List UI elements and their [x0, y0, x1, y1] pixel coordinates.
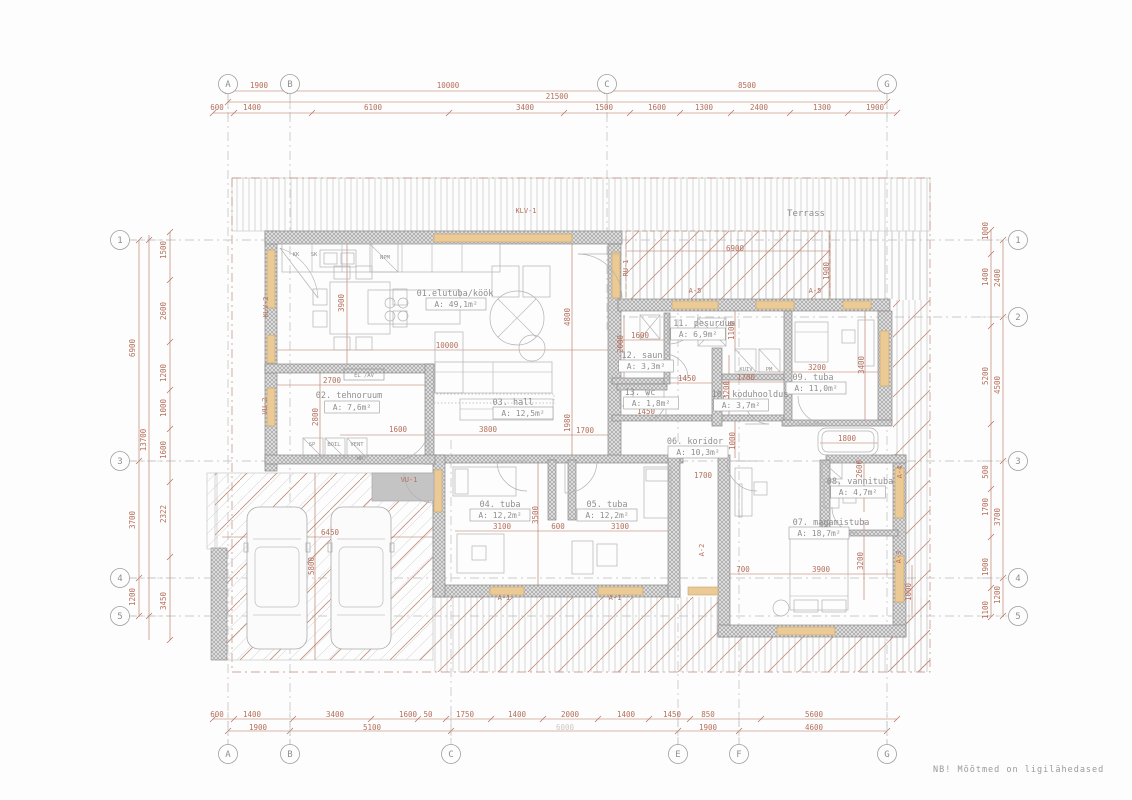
room-area: A: 18,7m²: [797, 529, 840, 538]
plan-rect: [211, 548, 227, 660]
wall: [784, 311, 792, 426]
grid-bubble-label: 3: [117, 457, 122, 467]
plan-rect: [232, 178, 930, 231]
window: [880, 331, 889, 386]
dimension-text: 1200: [159, 363, 168, 382]
dimension-text: 3100: [493, 522, 512, 531]
dimension-text: 10000: [437, 81, 460, 90]
dimension-text: 850: [701, 710, 715, 719]
room-area: A: 10,3m²: [676, 448, 719, 457]
small-label: NPM: [380, 255, 391, 261]
dimension-text: 3700: [128, 510, 137, 529]
window: [434, 234, 572, 242]
grid-bubble-label: 2: [1015, 313, 1020, 323]
room-label: 01.elutuba/köök: [417, 289, 494, 299]
room-area: A: 3,7m²: [722, 401, 761, 410]
car: [331, 507, 391, 649]
tag-label: KLV-2: [262, 296, 270, 317]
wall: [712, 348, 722, 426]
room-label: 12. saun: [622, 351, 663, 361]
dimension-text: 8500: [738, 81, 757, 90]
wall: [433, 455, 683, 463]
tag-label: VU-2: [261, 398, 269, 415]
dimension-text: 2400: [750, 103, 769, 112]
grid-bubble-label: A: [225, 750, 231, 760]
small-label: KK: [293, 252, 300, 258]
small-label: WD: [357, 456, 364, 462]
dimension-text: 1000: [904, 582, 913, 601]
wall: [718, 455, 730, 637]
dimension-text: 3400: [857, 355, 866, 374]
small-label: Terrass: [787, 209, 825, 219]
dimension-text: 4800: [563, 307, 572, 326]
small-label: PM: [766, 367, 773, 373]
tag-label: KLV-1: [515, 207, 536, 215]
dimension-text: 6900: [128, 338, 137, 357]
window: [777, 627, 835, 635]
dimension-text: 3400: [516, 103, 535, 112]
dimension-text: 600: [210, 103, 224, 112]
dimension-text: 1000: [728, 431, 737, 450]
dimension-text: 1700: [694, 471, 713, 480]
grid-bubble-label: 1: [117, 236, 122, 246]
wall: [782, 420, 892, 426]
room-label: 07. magamistuba: [793, 518, 870, 528]
car: [247, 507, 307, 649]
dimension-text: 1600: [648, 103, 667, 112]
dimension-text: 1300: [813, 103, 832, 112]
tag-label: A-4: [896, 466, 904, 479]
room-label: 02. tehnoruum: [316, 391, 383, 401]
dimension-text: 1000: [981, 221, 990, 240]
dimension-text: 1450: [678, 374, 697, 383]
dimension-text: 5600: [805, 710, 824, 719]
small-label: KUIV: [739, 367, 753, 373]
window: [843, 301, 871, 309]
dimension-text: 2000: [561, 710, 580, 719]
dimension-text: 700: [736, 565, 750, 574]
grid-bubble-label: C: [604, 80, 609, 90]
grid-bubble-label: 5: [1015, 612, 1020, 622]
dimension-text: 1400: [243, 103, 262, 112]
tag-label: VU-1: [401, 476, 418, 484]
dimension-text: 1900: [250, 81, 269, 90]
wall: [265, 364, 433, 373]
room-area: A: 1,8m²: [632, 399, 671, 408]
dimension-text: 500: [981, 465, 990, 479]
dimension-text: 2322: [159, 505, 168, 523]
dimension-text: 1400: [981, 267, 990, 286]
room-label: 06. koridor: [667, 437, 723, 447]
dimension-text: 1600: [389, 425, 408, 434]
grid-bubble-label: A: [225, 80, 231, 90]
note-text: NB! Mõõtmed on ligilähedased: [933, 765, 1104, 775]
dimension-text: 3100: [611, 522, 630, 531]
dimension-text: 1400: [617, 710, 636, 719]
small-label: BOIL: [327, 442, 341, 448]
dimension-text: 1600: [159, 440, 168, 459]
room-label: 10. koduhooldus: [712, 390, 789, 400]
dimension-text: 1200: [128, 587, 137, 606]
dimension-text: 3800: [479, 425, 498, 434]
small-label: VENT: [350, 442, 364, 448]
plan-rect: [626, 231, 830, 300]
grid-bubble-label: B: [287, 80, 292, 90]
wall: [265, 455, 435, 464]
dimension-text: 2700: [323, 376, 342, 385]
dimension-text: 2400: [993, 268, 1002, 287]
wall: [826, 455, 906, 463]
grid-bubble-label: C: [448, 750, 453, 760]
tag-label: A-3: [895, 551, 903, 564]
wall: [425, 364, 434, 464]
wall: [548, 460, 556, 520]
dimension-text: 3900: [812, 565, 831, 574]
dimension-text: 6000: [556, 723, 575, 732]
dimension-text: 600: [210, 710, 224, 719]
dimension-text: 4600: [805, 723, 824, 732]
wall: [612, 378, 666, 384]
dimension-text: 13700: [139, 428, 148, 451]
dimension-text: 1500: [159, 240, 168, 259]
dimension-text: 10000: [436, 341, 459, 350]
dimension-text: 1900: [249, 723, 268, 732]
dimension-text: 1700: [737, 373, 756, 382]
dimension-text: 3400: [326, 710, 345, 719]
room-area: A: 49,1m²: [434, 300, 477, 309]
wall: [664, 313, 670, 384]
dimension-text: 3200: [808, 363, 827, 372]
grid-bubble-label: 4: [117, 574, 122, 584]
dimension-text: 2600: [855, 459, 864, 478]
grid-bubble-label: 4: [1015, 574, 1020, 584]
dimension-text: 2600: [159, 301, 168, 320]
tag-label: A-1: [609, 594, 622, 602]
dimension-text: 1100: [981, 600, 990, 619]
room-area: A: 3,3m²: [627, 362, 666, 371]
dimension-text: 1600: [631, 331, 650, 340]
wall: [568, 460, 576, 520]
grid-bubble-label: E: [675, 750, 680, 760]
dimension-text: 5100: [363, 723, 382, 732]
room-label: 08. vannituba: [827, 477, 894, 487]
small-label: EL /AV: [354, 373, 375, 379]
room-area: A: 4,7m²: [839, 488, 878, 497]
window: [756, 301, 794, 309]
dimension-text: 4500: [993, 375, 1002, 394]
dimension-text: 3700: [993, 507, 1002, 526]
room-label: 03. hall: [493, 398, 534, 408]
tag-label: A-1: [498, 594, 511, 602]
dimension-text: 6450: [321, 528, 340, 537]
floor-plan-drawing: ABCGABCEFG134512345190010000850021500600…: [0, 0, 1132, 800]
grid-bubble-label: 1: [1015, 236, 1020, 246]
dimension-text: 600: [551, 522, 565, 531]
room-label: 04. tuba: [480, 500, 521, 510]
small-label: SP: [309, 442, 316, 448]
room-label: 05. tuba: [587, 500, 628, 510]
dimension-text: 6100: [364, 103, 383, 112]
tag-label: RU-1: [622, 260, 630, 277]
dimension-text: 1400: [243, 710, 262, 719]
wall: [668, 455, 680, 597]
small-label: SK: [311, 252, 318, 258]
room-area: A: 6,9m²: [679, 330, 718, 339]
dimension-text: 1300: [695, 103, 714, 112]
tag-label: A-5: [689, 287, 702, 295]
room-area: A: 7,6m²: [333, 403, 372, 412]
dimension-text: 1700: [981, 497, 990, 516]
room-area: A: 11,0m²: [794, 384, 837, 393]
dimension-text: 1900: [699, 723, 718, 732]
room-label: 09. tuba: [793, 373, 834, 383]
grid-bubble-label: 3: [1015, 457, 1020, 467]
grid-bubble-label: G: [884, 750, 889, 760]
dimension-text: 1600: [399, 710, 418, 719]
window: [672, 301, 718, 309]
room-label: 11. pesuruum: [673, 319, 734, 329]
window: [267, 335, 275, 363]
grid-bubble-label: 5: [117, 612, 122, 622]
dimension-text: 5200: [981, 366, 990, 385]
window: [434, 470, 442, 512]
dimension-text: 6900: [726, 244, 745, 253]
dimension-text: 1000: [159, 398, 168, 417]
floor-plan: ABCGABCEFG134512345190010000850021500600…: [0, 0, 1132, 800]
dimension-text: 3500: [531, 505, 540, 524]
room-label: 13. wc: [625, 388, 656, 398]
dimension-text: 1700: [576, 426, 595, 435]
dimension-text: 1750: [456, 710, 475, 719]
tag-label: A-5: [809, 287, 822, 295]
dimension-text: 1800: [838, 434, 857, 443]
dimension-text: 1200: [993, 585, 1002, 604]
grid-bubble-label: B: [287, 750, 292, 760]
dimension-text: 3450: [159, 591, 168, 610]
dimension-text: 1500: [595, 103, 614, 112]
room-area: A: 12,2m²: [585, 511, 628, 520]
dimension-text: 1900: [981, 557, 990, 576]
dimension-text: 1400: [508, 710, 527, 719]
window: [688, 587, 718, 595]
room-area: A: 12,2m²: [478, 511, 521, 520]
dimension-text: 3200: [856, 551, 865, 570]
tag-label: A-2: [698, 544, 706, 557]
plan-rect: [207, 473, 217, 549]
dimension-text: 21500: [546, 92, 569, 101]
dimension-text: 3900: [337, 293, 346, 312]
dimension-text: 2800: [311, 407, 320, 426]
dimension-text: 1980: [563, 413, 572, 432]
dimension-text: 1900: [866, 103, 885, 112]
grid-bubble-label: F: [736, 750, 741, 760]
dimension-text: 50: [423, 710, 433, 719]
grid-bubble-label: G: [884, 80, 889, 90]
dimension-text: 1450: [663, 710, 682, 719]
room-area: A: 12,5m²: [501, 409, 544, 418]
dimension-text: 5800: [307, 556, 316, 575]
plan-rect: [433, 597, 680, 672]
dimension-text: 1900: [822, 261, 831, 280]
